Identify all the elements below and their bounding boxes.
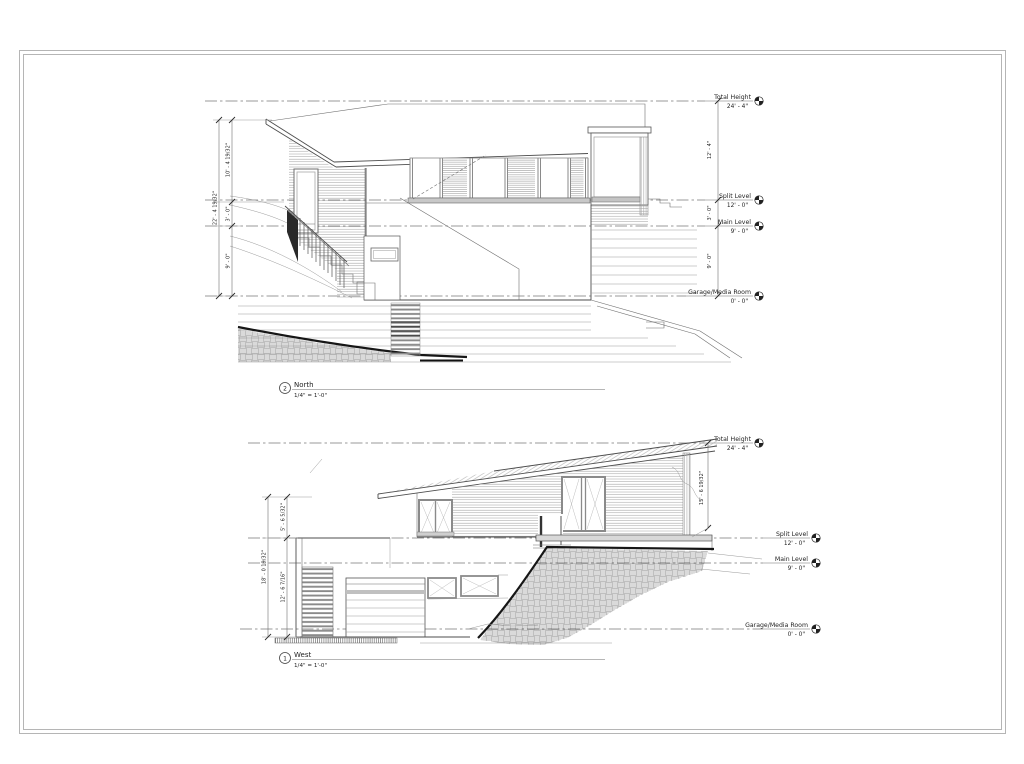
elevation-drawings: 10' - 4 19/32" 3' - 0" 9' - 0" 22' - 4 1…: [0, 0, 1024, 764]
level-name: Split Level: [719, 193, 751, 200]
west-upper-window-right: [562, 477, 605, 531]
north-lower-window: [371, 248, 398, 261]
view-number: 1: [283, 656, 287, 663]
dimension-text: 12' - 4": [707, 141, 713, 159]
view-scale: 1/4" = 1'-0": [294, 663, 327, 669]
north-ribbon-windows: [408, 158, 590, 203]
drawing-sheet: 10' - 4 19/32" 3' - 0" 9' - 0" 22' - 4 1…: [0, 0, 1024, 764]
level-elevation: 0' - 0": [788, 632, 806, 638]
level-elevation: 9' - 0": [731, 229, 749, 235]
level-elevation: 0' - 0": [731, 299, 749, 305]
north-level-labels: Total Height 24' - 4" Split Level 12' - …: [688, 94, 763, 305]
level-elevation: 24' - 4": [727, 446, 748, 452]
level-name: Split Level: [776, 531, 808, 538]
west-elevation-view: 5' - 6 5/32" 12' - 6 7/16" 18' - 0 19/32…: [240, 436, 820, 669]
dimension-text: 18' - 0 19/32": [262, 550, 268, 584]
west-view-title: 1 West 1/4" = 1'-0": [280, 651, 606, 669]
level-elevation: 9' - 0": [788, 566, 806, 572]
view-scale: 1/4" = 1'-0": [294, 393, 327, 399]
north-stair-tower: [588, 127, 682, 328]
north-deck-stripes: [391, 303, 420, 356]
level-name: Main Level: [775, 556, 808, 563]
north-elevation-view: 10' - 4 19/32" 3' - 0" 9' - 0" 22' - 4 1…: [205, 94, 763, 399]
level-name: Garage/Media Room: [688, 289, 751, 296]
west-louver-stack: [302, 567, 333, 637]
level-name: Main Level: [718, 219, 751, 226]
dimension-text: 12' - 6 7/16": [281, 571, 287, 602]
dimension-text: 9' - 0": [226, 253, 232, 268]
dimension-text: 22' - 4 19/32": [213, 191, 219, 225]
north-ground-hatch: [238, 329, 391, 362]
level-name: Total Height: [713, 94, 751, 101]
level-elevation: 12' - 0": [727, 203, 748, 209]
west-upper-window-left: [417, 500, 454, 536]
view-name: West: [294, 651, 311, 659]
dimension-text: 3' - 0": [226, 206, 232, 221]
view-name: North: [294, 381, 314, 389]
dimension-text: 9' - 0": [707, 253, 713, 268]
north-ribbon-sill: [408, 198, 590, 203]
view-number: 2: [283, 386, 287, 393]
north-view-title: 2 North 1/4" = 1'-0": [280, 381, 606, 399]
level-elevation: 24' - 4": [727, 104, 748, 110]
level-name: Garage/Media Room: [745, 622, 808, 629]
dimension-text: 5' - 6 5/32": [281, 503, 287, 531]
dimension-text: 15' - 6 19/32": [699, 471, 705, 505]
west-lower-block: [275, 538, 508, 643]
dimension-text: 10' - 4 19/32": [226, 143, 232, 177]
level-elevation: 12' - 0": [784, 541, 805, 547]
north-building: [266, 104, 682, 328]
west-base-strip: [275, 638, 397, 643]
west-level-labels: Total Height 24' - 4" Split Level 12' - …: [713, 436, 820, 638]
west-ground-hatch: [480, 548, 708, 645]
level-name: Total Height: [713, 436, 751, 443]
west-split-ledge: [536, 535, 712, 541]
west-lower-windows: [428, 575, 508, 599]
north-left-dimensions: 10' - 4 19/32" 3' - 0" 9' - 0" 22' - 4 1…: [213, 117, 285, 299]
dimension-text: 3' - 0": [707, 205, 713, 220]
west-garage-door: [346, 578, 425, 637]
